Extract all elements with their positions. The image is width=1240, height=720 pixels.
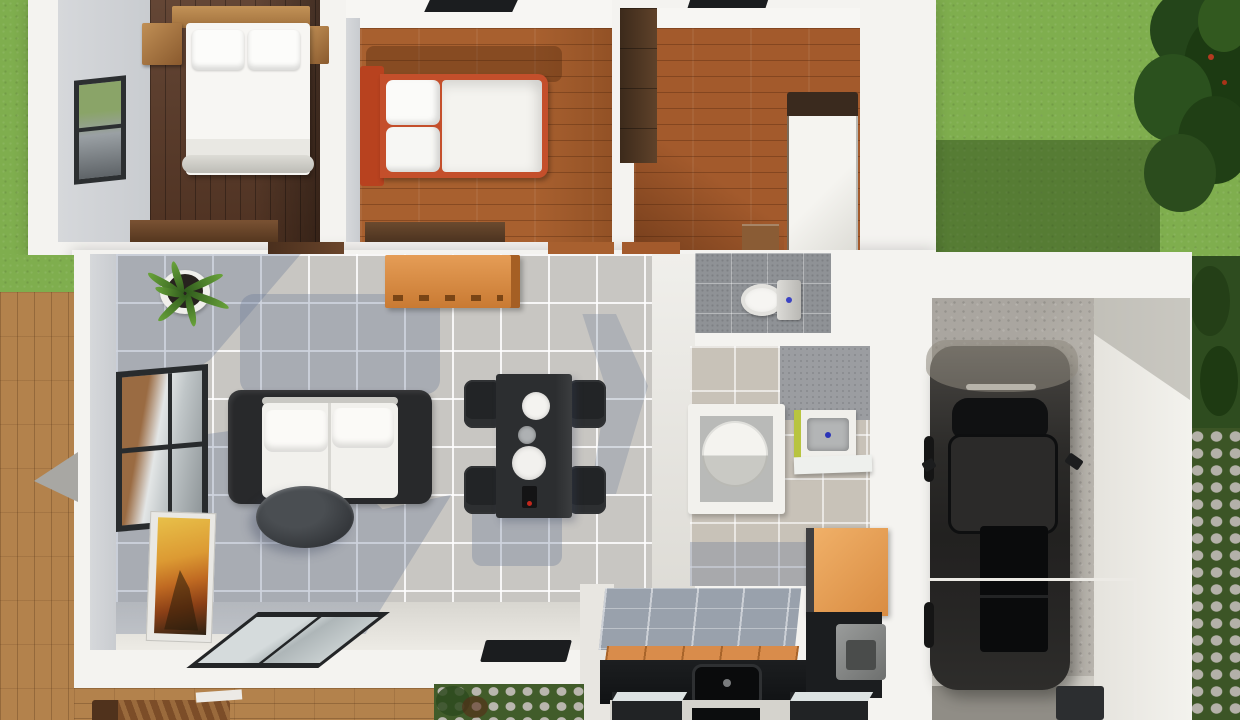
vanity-basin [807, 418, 849, 451]
bedroom-1-window [74, 75, 126, 184]
bed-1-pillow [192, 30, 244, 70]
window-mullion [168, 373, 172, 521]
basin-drain [825, 432, 831, 438]
bed-1-pillow [248, 30, 300, 70]
lawn-shadow [926, 140, 1160, 268]
wall-shadow [1094, 298, 1190, 418]
railing [928, 578, 1136, 581]
deck-left [0, 292, 74, 720]
hedge-blob [1190, 266, 1230, 336]
bedroom-2 [346, 0, 612, 242]
island-unit [612, 692, 682, 720]
bathroom-wall-face [780, 346, 870, 420]
bed-2 [360, 66, 550, 186]
island-unit-top [612, 692, 687, 701]
car-sunroof [980, 526, 1048, 652]
garden-plant [462, 696, 488, 718]
railing-post [1134, 578, 1137, 720]
wood-step [742, 224, 779, 250]
candle-red-dot [527, 501, 532, 506]
sunroof-divider [980, 595, 1048, 598]
tree-canopy [1126, 0, 1240, 242]
sofa-back-pillow [264, 410, 328, 452]
island-unit [790, 692, 868, 720]
tall-white-cabinet [787, 92, 858, 250]
plate [522, 392, 550, 420]
toilet-cistern [777, 280, 801, 320]
bedroom-1 [58, 0, 320, 242]
living-room [90, 254, 652, 650]
nightstand-left [142, 23, 182, 65]
door-divider [259, 617, 322, 663]
dining-chair [568, 466, 606, 514]
artwork-figure [164, 570, 200, 631]
bed-2-pillow [386, 80, 440, 125]
kitchen-wall-tile [599, 588, 802, 650]
coffee-table [256, 486, 354, 548]
car-roof [948, 434, 1058, 534]
artwork-leaning [146, 511, 215, 645]
floor-plan-render [0, 0, 1240, 720]
car-rear-wall-shadow [926, 340, 1078, 392]
shower [688, 404, 785, 514]
sideboard [385, 255, 520, 308]
wardrobe [620, 8, 657, 163]
bedroom-3 [612, 0, 860, 250]
hedge-blob [1200, 346, 1238, 416]
bed-2-duvet [442, 80, 542, 172]
living-window [116, 364, 208, 532]
grass-deck-corner [0, 255, 74, 293]
faucet [723, 679, 731, 687]
cabinet-body [787, 116, 858, 250]
lounge-chair-back [92, 700, 118, 720]
potted-plant [148, 260, 240, 332]
bed-2-pillow [386, 127, 440, 172]
tree-berry [1222, 80, 1227, 85]
tree-berry [1208, 54, 1214, 60]
sofa-back-pillow [332, 408, 394, 448]
sofa-floor-shadow [240, 294, 440, 394]
vanity-lime-side [794, 410, 801, 458]
garage-bin [1056, 686, 1104, 720]
shower-round-tray [702, 421, 768, 487]
vanity [794, 410, 856, 458]
garage-right-wall [1094, 298, 1190, 720]
lounge-chair [118, 700, 230, 720]
cooktop [692, 708, 760, 720]
nightstand-right [307, 26, 329, 64]
tree-blob [1144, 134, 1216, 212]
dining-table [496, 374, 572, 518]
window-crossbar [122, 442, 202, 454]
garden-stones-bottom [434, 684, 584, 720]
sideboard-vents [393, 295, 503, 301]
bedroom-2-west-wall [346, 18, 360, 242]
sofa [228, 390, 432, 504]
bed-1-blanket-roll [182, 155, 314, 173]
right-hedge-strip [1186, 256, 1240, 720]
car-rear-window [952, 398, 1048, 438]
bowl [518, 426, 536, 444]
kitchen [580, 584, 880, 720]
artwork-canvas [154, 517, 210, 635]
flush-button [786, 297, 792, 303]
table-candle [522, 486, 537, 508]
bedroom-2-skylight [424, 0, 518, 12]
doormat [480, 640, 572, 662]
sofa-cushion-split [328, 403, 331, 498]
bedroom-3-ceiling-band [634, 8, 860, 30]
garage [860, 252, 1192, 720]
bed-1 [186, 23, 310, 175]
stepping-stone-path [1188, 428, 1240, 720]
cabinet-top-dark [787, 92, 858, 118]
plate [512, 446, 546, 480]
wc-room [690, 250, 870, 338]
dresser-2 [365, 222, 505, 242]
dresser-1 [130, 220, 278, 242]
dining-chair [568, 380, 606, 428]
living-west-wall [90, 254, 116, 650]
lawn-left-strip [0, 0, 30, 260]
car [926, 340, 1078, 696]
car-wheel [924, 602, 934, 648]
window-crossbar [79, 124, 121, 132]
